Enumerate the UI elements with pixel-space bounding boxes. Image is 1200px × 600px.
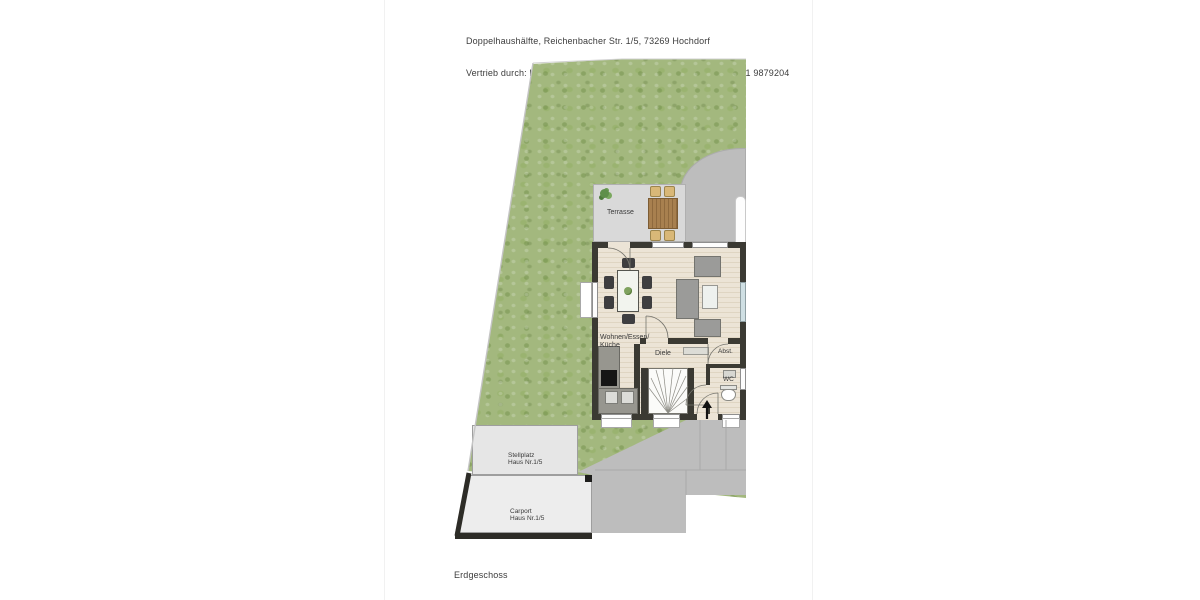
- door-swing-arcs: [608, 248, 728, 414]
- plot-boundary-left: [468, 63, 533, 471]
- site-plan: Terrasse Stellplatz Haus Nr.1/5 Carport …: [455, 58, 746, 542]
- floorplan-page: Doppelhaushälfte, Reichenbacher Str. 1/5…: [0, 0, 1200, 600]
- terrace-door-arc: [608, 248, 630, 270]
- plan-linework: [455, 58, 746, 542]
- stair-treads: [649, 368, 688, 413]
- wc-door-arc: [686, 385, 706, 405]
- page-edge-left: [384, 0, 385, 600]
- plot-boundary-top: [533, 59, 746, 63]
- driveway-joint-lines: [595, 420, 746, 495]
- living-hall-door-arc: [646, 316, 668, 338]
- footer-caption: Erdgeschoss unverbindliche Illustration: [454, 548, 560, 600]
- footer-line1: Erdgeschoss: [454, 570, 560, 581]
- page-edge-right: [812, 0, 813, 600]
- storage-door-arc: [708, 344, 728, 364]
- entrance-arrow-icon: [702, 400, 712, 419]
- header-line1: Doppelhaushälfte, Reichenbacher Str. 1/5…: [466, 36, 789, 47]
- carport-side-wall: [457, 473, 469, 536]
